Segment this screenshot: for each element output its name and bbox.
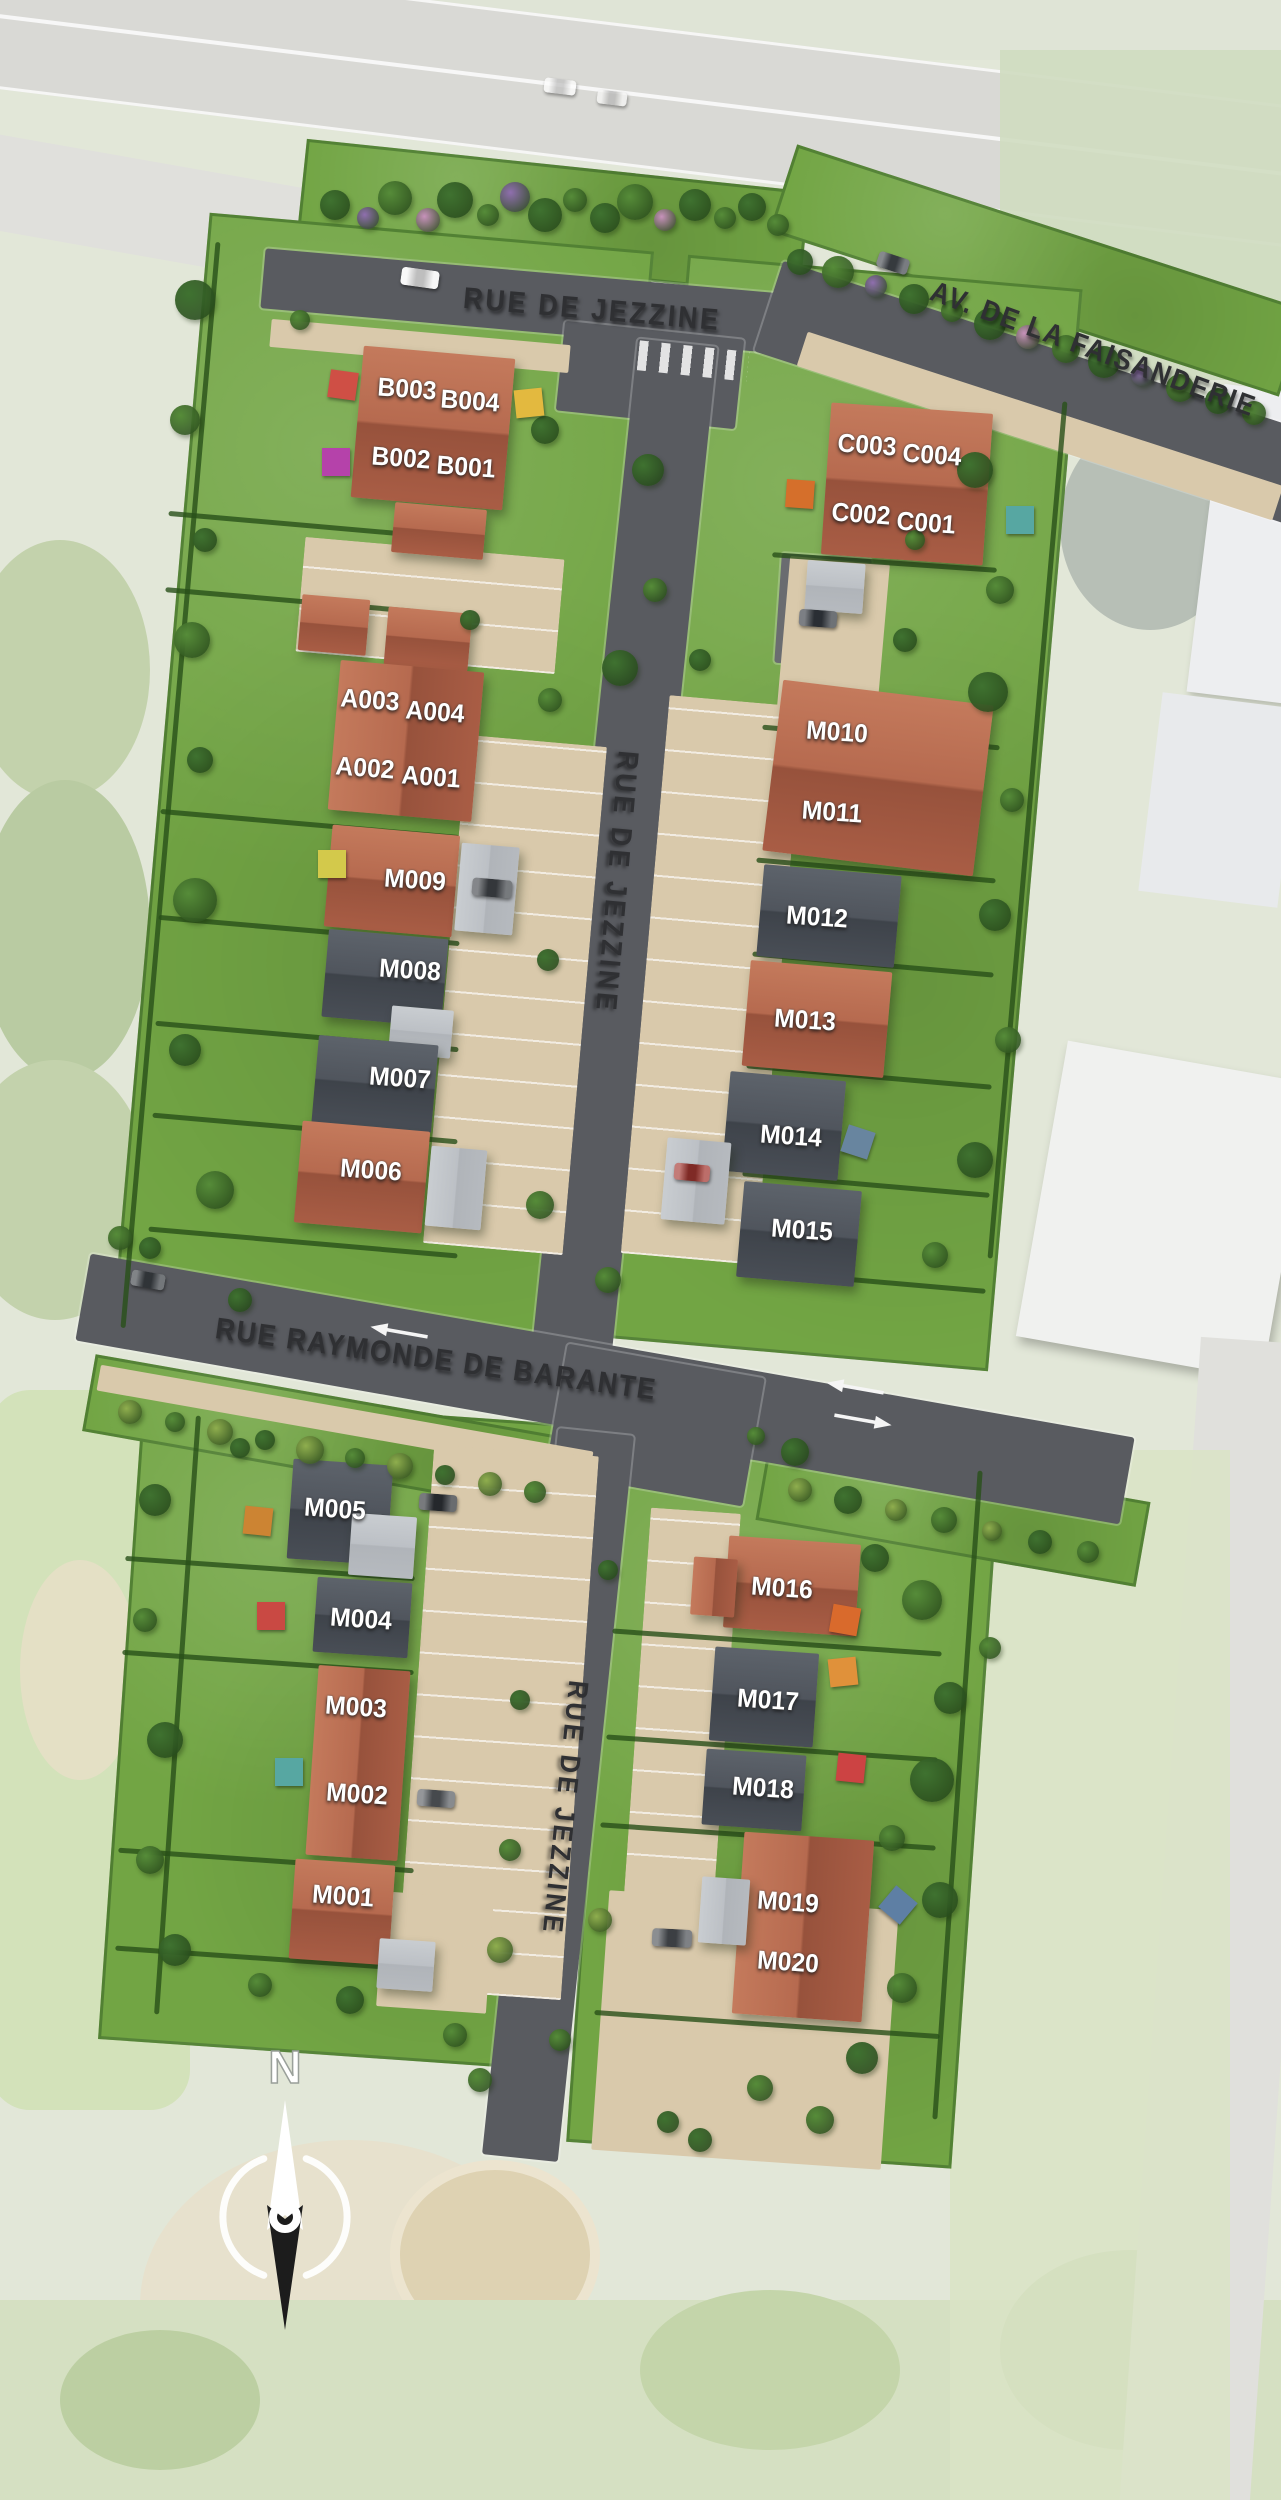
bush	[632, 454, 664, 486]
lot-label-C004: C004	[901, 437, 962, 472]
bush	[435, 1465, 455, 1485]
lot-label-M020: M020	[756, 1944, 820, 1979]
bush	[139, 1484, 171, 1516]
parasol	[514, 388, 545, 419]
building-M019-garage	[698, 1876, 750, 1945]
lot-label-M001: M001	[311, 1878, 375, 1913]
bush	[139, 1237, 161, 1259]
car	[543, 77, 577, 96]
lot-label-M010: M010	[805, 714, 869, 749]
building-B	[351, 346, 516, 511]
lot-label-C003: C003	[836, 427, 897, 462]
bush	[588, 1908, 612, 1932]
bush	[136, 1846, 164, 1874]
bush	[861, 1544, 889, 1572]
bush	[688, 2128, 712, 2152]
bush	[934, 1682, 966, 1714]
bush	[133, 1608, 157, 1632]
bush	[563, 188, 587, 212]
bush	[902, 1580, 942, 1620]
bush	[159, 1934, 191, 1966]
bush	[378, 181, 412, 215]
lot-label-M016: M016	[750, 1570, 814, 1605]
lot-label-M004: M004	[329, 1601, 393, 1636]
lot-label-M002: M002	[325, 1776, 389, 1811]
bush	[537, 949, 559, 971]
car	[471, 877, 512, 898]
lot-label-A003: A003	[339, 682, 400, 717]
bush	[1000, 788, 1024, 812]
bush	[602, 650, 638, 686]
compass-rose-icon: N	[205, 2035, 365, 2355]
bush	[806, 2106, 834, 2134]
faded-building-industrial	[1016, 1041, 1281, 1380]
bush	[617, 184, 653, 220]
bush	[957, 452, 993, 488]
lot-label-M011: M011	[801, 794, 863, 829]
bush	[879, 1825, 905, 1851]
bush	[1028, 1530, 1052, 1554]
lot-label-C001: C001	[895, 505, 956, 540]
building-A-annex-2	[384, 606, 473, 671]
faded-field-right-bottom	[950, 1450, 1230, 2500]
parasol	[327, 369, 359, 401]
parasol	[828, 1657, 859, 1688]
bush	[922, 1882, 958, 1918]
bush	[345, 1448, 365, 1468]
building-M006-carport	[425, 1146, 488, 1231]
lot-label-M005: M005	[303, 1491, 367, 1526]
building-C-carport	[804, 560, 865, 614]
parasol	[1006, 506, 1034, 534]
bush	[887, 1973, 917, 2003]
bush	[255, 1430, 275, 1450]
bush	[654, 209, 676, 231]
bush	[865, 275, 887, 297]
bush	[443, 2023, 467, 2047]
bush	[538, 688, 562, 712]
bush	[531, 416, 559, 444]
lot-label-M006: M006	[339, 1152, 403, 1187]
faded-trees-bottom-2	[640, 2290, 900, 2450]
bush	[714, 207, 736, 229]
bush	[416, 208, 440, 232]
lot-label-M012: M012	[785, 899, 849, 934]
building-M019-M020	[732, 1832, 874, 2023]
lot-label-B004: B004	[439, 383, 500, 418]
bush	[590, 203, 620, 233]
bush	[1077, 1541, 1099, 1563]
bush	[738, 193, 766, 221]
bush	[549, 2029, 571, 2051]
bush	[979, 899, 1011, 931]
bush	[196, 1171, 234, 1209]
car	[673, 1162, 710, 1182]
car	[652, 1928, 693, 1948]
building-B-garage	[391, 502, 487, 560]
bush	[679, 189, 711, 221]
car	[798, 608, 837, 628]
bush	[643, 578, 667, 602]
lot-label-B002: B002	[370, 440, 431, 475]
lot-label-M003: M003	[324, 1689, 388, 1724]
bush	[957, 1142, 993, 1178]
bush	[478, 1472, 502, 1496]
bush	[922, 1242, 948, 1268]
lot-label-M017: M017	[736, 1682, 800, 1717]
bush	[477, 204, 499, 226]
bush	[487, 1937, 513, 1963]
bush	[468, 2068, 492, 2092]
bush	[248, 1973, 272, 1997]
parasol	[836, 1753, 867, 1784]
bush	[689, 649, 711, 671]
lot-label-B001: B001	[435, 449, 496, 484]
lot-label-M009: M009	[383, 862, 447, 897]
bush	[528, 198, 562, 232]
lot-label-M018: M018	[731, 1770, 795, 1805]
bush	[437, 182, 473, 218]
bush	[230, 1438, 250, 1458]
bush	[108, 1226, 132, 1250]
bush	[986, 576, 1014, 604]
bush	[931, 1507, 957, 1533]
compass-north-letter: N	[268, 2041, 301, 2093]
bush	[228, 1288, 252, 1312]
bush	[598, 1560, 618, 1580]
bush	[595, 1267, 621, 1293]
lot-label-A001: A001	[400, 759, 461, 794]
parasol	[243, 1506, 274, 1537]
parasol	[275, 1758, 303, 1786]
parasol	[829, 1604, 861, 1636]
bush	[357, 207, 379, 229]
bush	[968, 672, 1008, 712]
bush	[767, 214, 789, 236]
bush	[499, 1839, 521, 1861]
bush	[822, 256, 854, 288]
bush	[175, 280, 215, 320]
lot-label-C002: C002	[830, 496, 891, 531]
bush	[169, 1034, 201, 1066]
faded-woods-left-2	[0, 780, 150, 1080]
bush	[788, 1478, 812, 1502]
bush	[979, 1637, 1001, 1659]
building-M001-link	[376, 1938, 435, 1992]
compass: N	[205, 2035, 365, 2355]
bush	[290, 310, 310, 330]
bush	[460, 610, 480, 630]
bush	[747, 1427, 765, 1445]
bush	[893, 628, 917, 652]
bush	[510, 1690, 530, 1710]
bush	[910, 1758, 954, 1802]
bush	[524, 1481, 546, 1503]
parasol	[785, 479, 815, 509]
bush	[207, 1419, 233, 1445]
bush	[296, 1436, 324, 1464]
bush	[387, 1453, 413, 1479]
lot-label-M015: M015	[770, 1212, 834, 1247]
bush	[187, 747, 213, 773]
bush	[747, 2075, 773, 2101]
faded-woods-left-1	[0, 540, 150, 800]
bush	[118, 1400, 142, 1424]
bush	[174, 622, 210, 658]
bush	[781, 1438, 809, 1466]
lot-label-M013: M013	[773, 1002, 837, 1037]
bush	[834, 1486, 862, 1514]
site-plan-canvas: RUE DE JEZZINEAV. DE LA FAISANDERIERUE D…	[0, 0, 1281, 2500]
car	[416, 1788, 455, 1808]
bush	[657, 2111, 679, 2133]
bush	[193, 528, 217, 552]
building-M010-M011	[762, 680, 993, 877]
bush	[170, 405, 200, 435]
bush	[899, 284, 929, 314]
bush	[165, 1412, 185, 1432]
bush	[787, 249, 813, 275]
parasol	[318, 850, 346, 878]
lot-label-M019: M019	[756, 1884, 820, 1919]
bush	[173, 878, 217, 922]
lot-label-A004: A004	[404, 694, 465, 729]
lot-label-M007: M007	[368, 1060, 432, 1095]
bush	[147, 1722, 183, 1758]
building-A-annex-1	[298, 594, 371, 656]
bush	[320, 190, 350, 220]
bush	[336, 1986, 364, 2014]
parasol	[257, 1602, 285, 1630]
bush	[995, 1027, 1021, 1053]
lot-label-M014: M014	[759, 1118, 823, 1153]
car	[418, 1492, 457, 1512]
bush	[885, 1499, 907, 1521]
bush	[846, 2042, 878, 2074]
lot-label-A002: A002	[334, 750, 395, 785]
building-M016-garage	[690, 1557, 738, 1618]
bush	[982, 1521, 1002, 1541]
lot-label-B003: B003	[376, 371, 437, 406]
bush	[500, 182, 530, 212]
bush	[526, 1191, 554, 1219]
parasol	[322, 448, 350, 476]
lot-label-M008: M008	[378, 952, 442, 987]
faded-building-right-2	[1138, 692, 1281, 908]
